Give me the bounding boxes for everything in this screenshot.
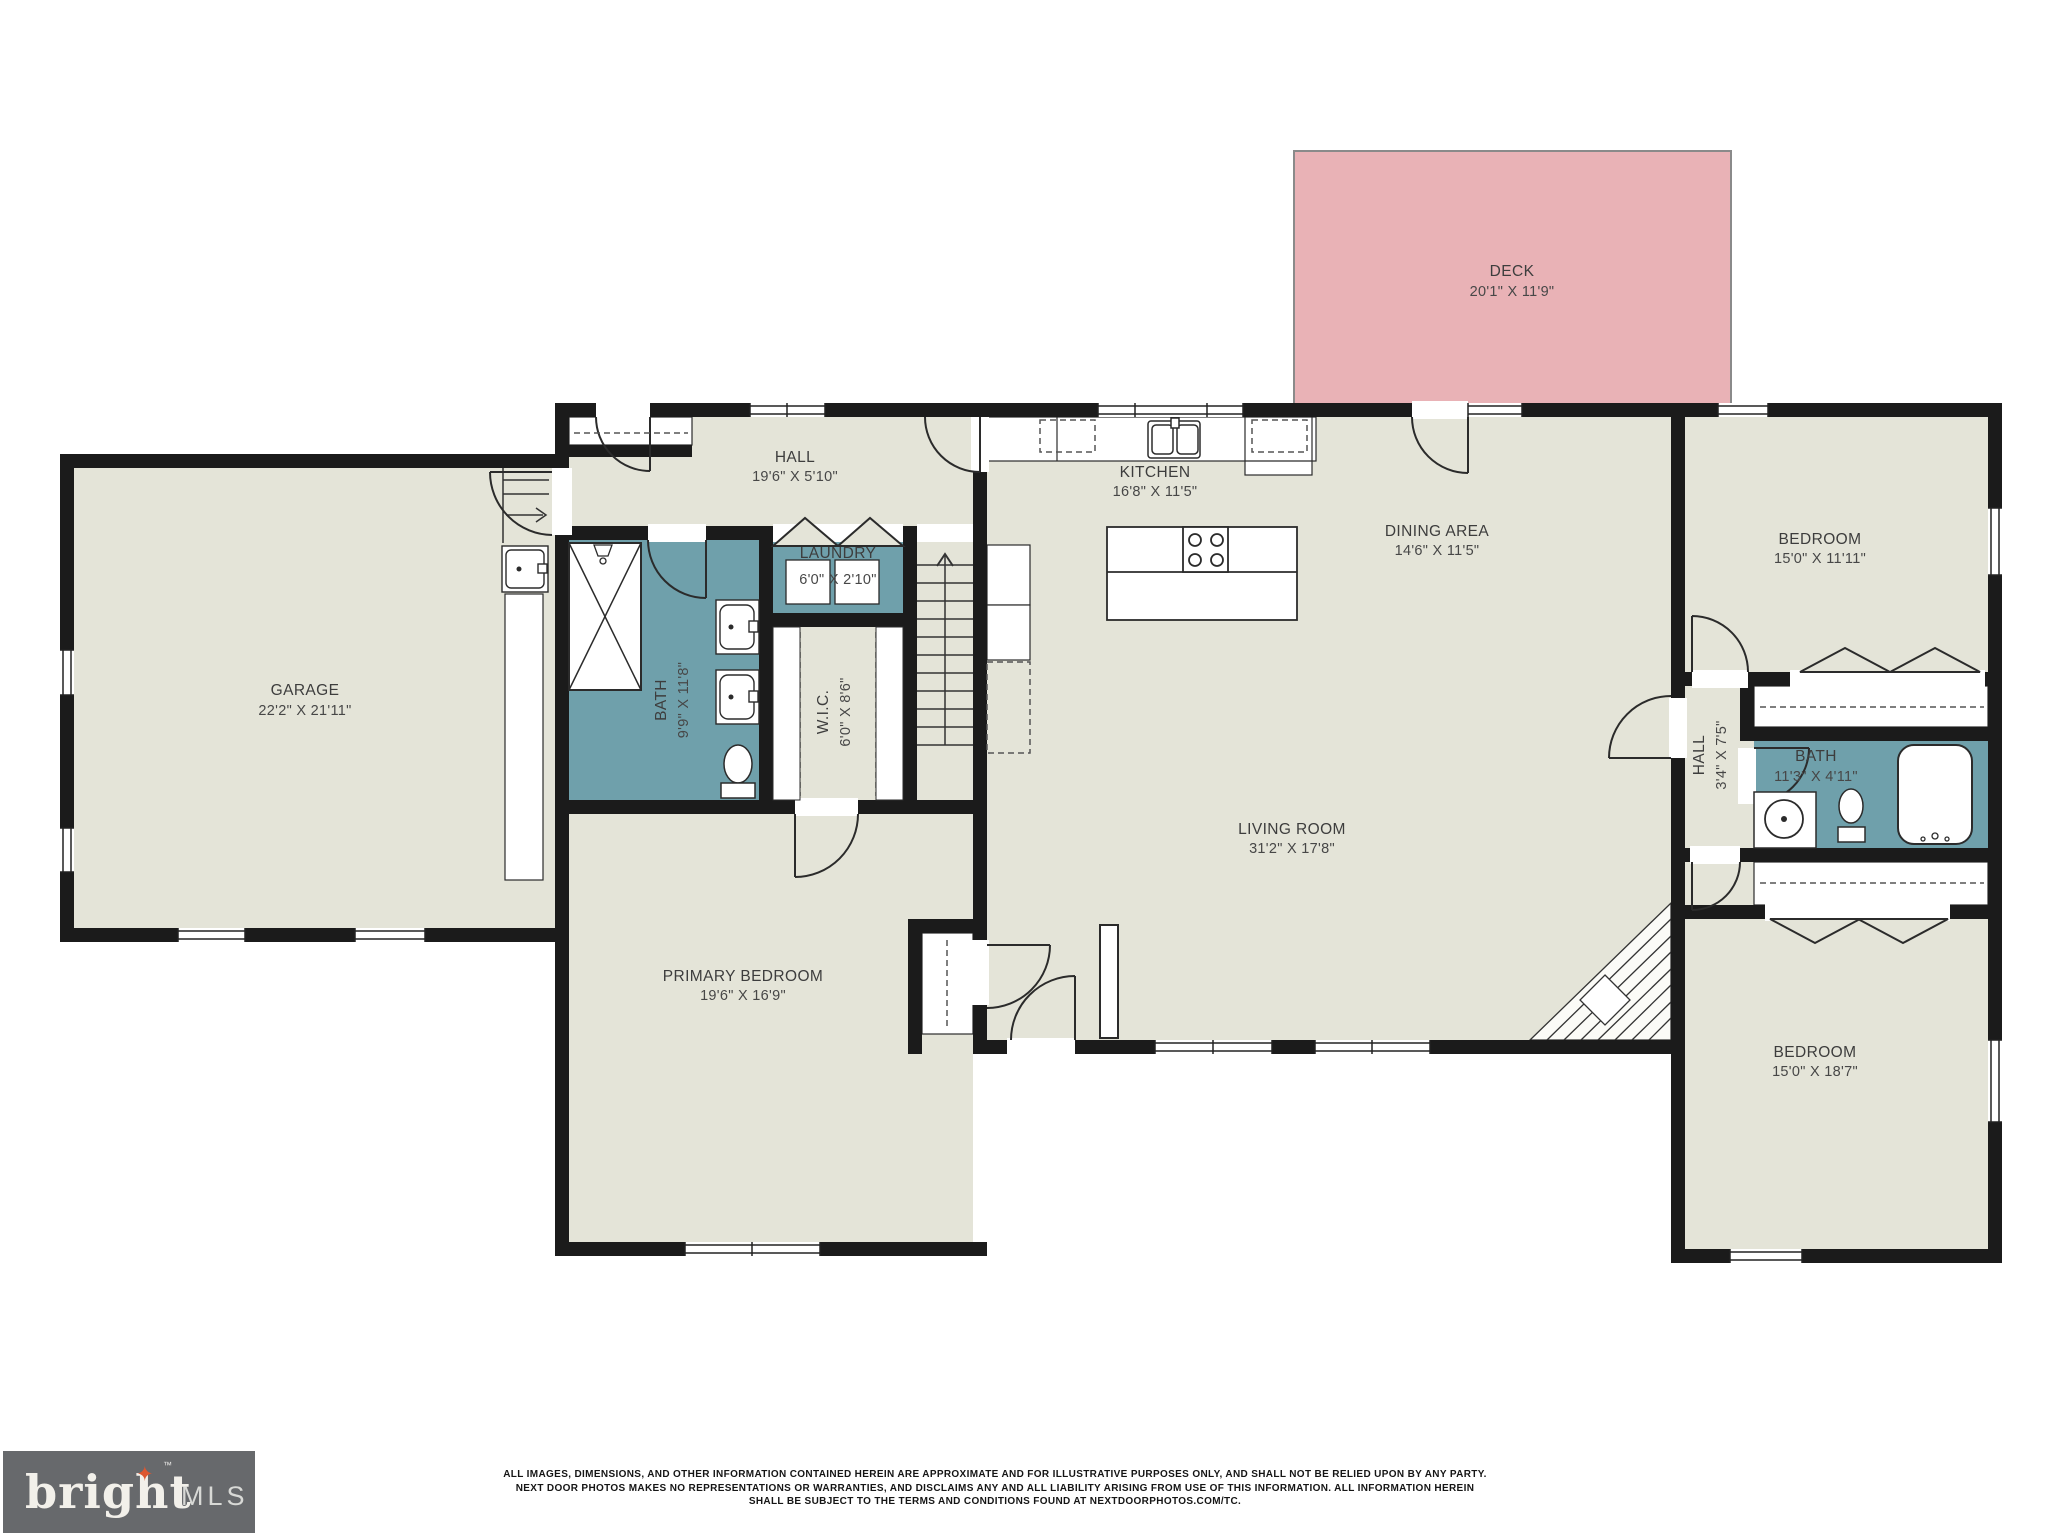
living-room-dims: 31'2" X 17'8" xyxy=(1249,841,1335,857)
bath2-label: BATH xyxy=(1795,748,1837,765)
kitchen-sink-icon xyxy=(1148,418,1200,458)
dining-dims: 14'6" X 11'5" xyxy=(1395,543,1480,559)
wic-label: W.I.C. xyxy=(815,690,832,735)
deck-label: DECK xyxy=(1490,263,1535,280)
disclaimer-line-3: SHALL BE SUBJECT TO THE TERMS AND CONDIT… xyxy=(0,1495,1990,1509)
utility-sink-icon xyxy=(502,546,548,592)
wic-dims: 6'0" X 8'6" xyxy=(838,677,854,746)
living-room-label: LIVING ROOM xyxy=(1238,821,1346,838)
hall2-label: HALL xyxy=(1691,735,1708,775)
toilet2-icon xyxy=(1838,789,1865,842)
deck-dims: 20'1" X 11'9" xyxy=(1470,284,1555,300)
primary-bedroom-dims: 19'6" X 16'9" xyxy=(700,988,786,1004)
toilet-icon xyxy=(721,745,755,798)
disclaimer-line-2: NEXT DOOR PHOTOS MAKES NO REPRESENTATION… xyxy=(0,1482,1990,1496)
bathtub-icon xyxy=(1898,745,1972,844)
shower-icon xyxy=(569,543,641,690)
kitchen-label: KITCHEN xyxy=(1120,464,1191,481)
hall2-dims: 3'4" X 7'5" xyxy=(1714,720,1730,789)
kitchen-dims: 16'8" X 11'5" xyxy=(1113,484,1198,500)
garage-dims: 22'2" X 21'11" xyxy=(258,703,351,719)
hall-dims: 19'6" X 5'10" xyxy=(752,469,838,485)
primary-bedroom-label: PRIMARY BEDROOM xyxy=(663,968,823,985)
bedroom-br-label: BEDROOM xyxy=(1774,1044,1857,1061)
bath-label: BATH xyxy=(653,679,670,721)
floor-plan-drawing: DECK 20'1" X 11'9" GARAGE 22'2" X 21'11"… xyxy=(0,0,2048,1536)
hall-label: HALL xyxy=(775,449,815,466)
disclaimer-line-1: ALL IMAGES, DIMENSIONS, AND OTHER INFORM… xyxy=(0,1468,1990,1482)
laundry-label: LAUNDRY xyxy=(800,545,877,562)
bath2-dims: 11'3" X 4'11" xyxy=(1774,769,1858,785)
dining-label: DINING AREA xyxy=(1385,523,1490,540)
entry-half-wall xyxy=(1100,925,1118,1038)
disclaimer-text: ALL IMAGES, DIMENSIONS, AND OTHER INFORM… xyxy=(0,1468,1990,1509)
bedroom-br-dims: 15'0" X 18'7" xyxy=(1772,1064,1858,1080)
laundry-dims: 6'0" X 2'10" xyxy=(799,572,876,588)
bath-dims: 9'9" X 11'8" xyxy=(676,662,692,738)
garage-label: GARAGE xyxy=(271,682,340,699)
round-sink-icon xyxy=(1754,792,1816,848)
kitchen-island xyxy=(1107,527,1297,620)
bedroom-tr-label: BEDROOM xyxy=(1779,531,1862,548)
bedroom-tr-dims: 15'0" X 11'11" xyxy=(1774,551,1866,567)
floor-fills xyxy=(74,417,1988,1249)
floor-plan-page: DECK 20'1" X 11'9" GARAGE 22'2" X 21'11"… xyxy=(0,0,2048,1536)
